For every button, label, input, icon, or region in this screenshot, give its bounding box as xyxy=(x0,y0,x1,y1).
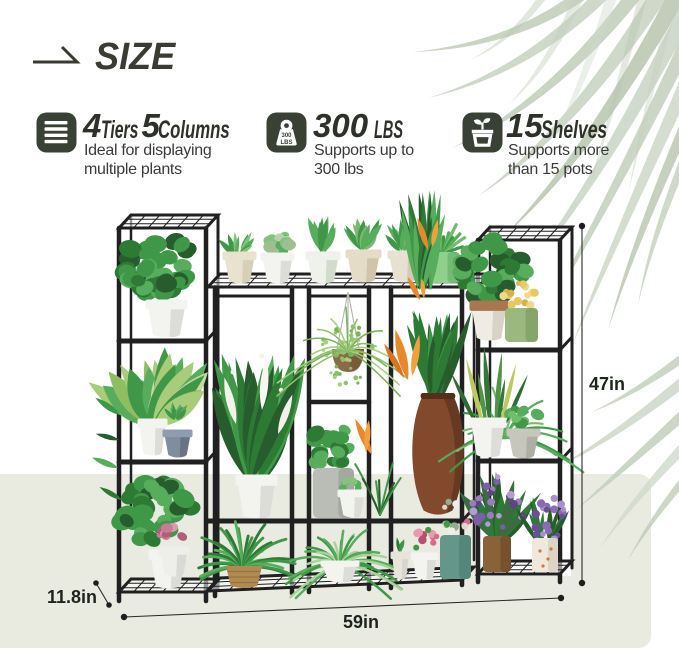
svg-text:300: 300 xyxy=(281,133,292,139)
svg-text:LBS: LBS xyxy=(281,140,293,146)
